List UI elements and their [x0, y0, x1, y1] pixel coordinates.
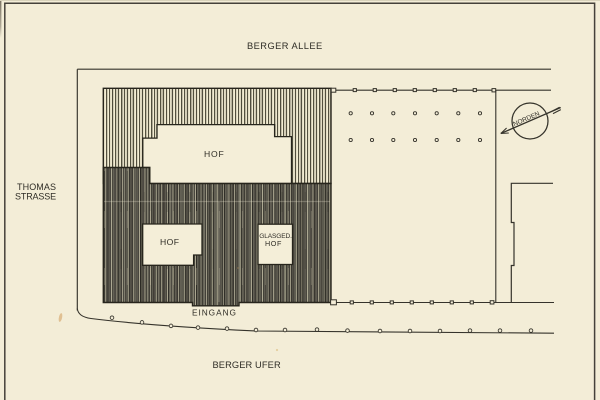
svg-text:HOF: HOF	[265, 239, 282, 248]
svg-text:BERGER UFER: BERGER UFER	[213, 360, 281, 370]
svg-text:THOMAS: THOMAS	[17, 182, 56, 192]
svg-text:BERGER ALLEE: BERGER ALLEE	[247, 41, 323, 51]
svg-text:STRASSE: STRASSE	[15, 192, 56, 202]
svg-text:HOF: HOF	[204, 149, 225, 159]
svg-text:EINGANG: EINGANG	[192, 307, 237, 317]
svg-text:HOF: HOF	[160, 237, 180, 247]
